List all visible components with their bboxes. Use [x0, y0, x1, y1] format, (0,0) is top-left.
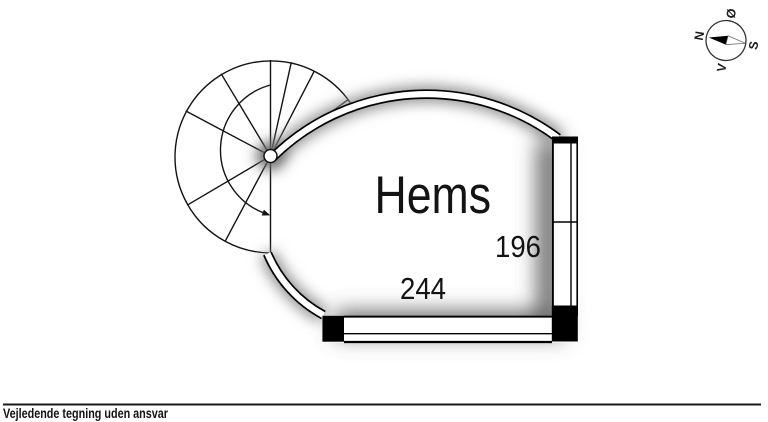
- svg-text:S: S: [746, 40, 761, 51]
- svg-text:Ø: Ø: [724, 7, 740, 19]
- svg-text:Hems: Hems: [375, 166, 492, 225]
- svg-text:196: 196: [495, 229, 541, 264]
- svg-text:V: V: [714, 62, 729, 73]
- svg-text:N: N: [692, 30, 707, 41]
- svg-text:Vejledende tegning uden ansvar: Vejledende tegning uden ansvar: [3, 406, 169, 421]
- svg-text:244: 244: [400, 271, 446, 306]
